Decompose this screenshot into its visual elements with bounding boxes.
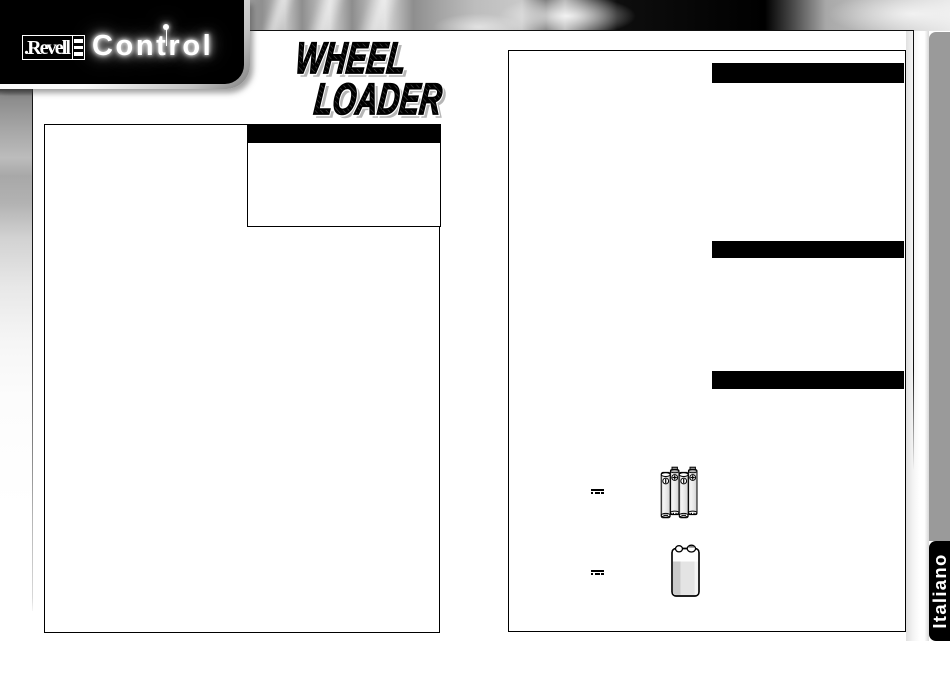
svg-text:LOADER: LOADER xyxy=(312,75,444,124)
